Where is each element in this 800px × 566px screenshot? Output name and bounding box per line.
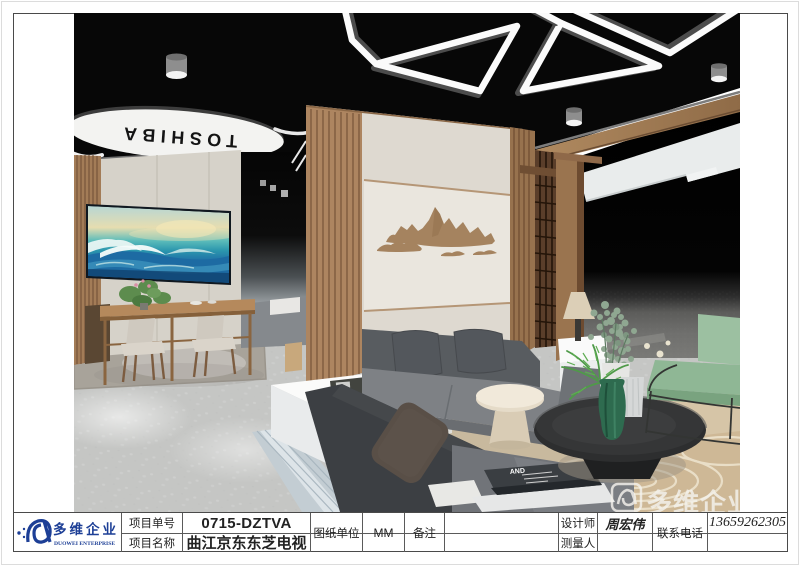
svg-text:多维企业: 多维企业 — [53, 521, 119, 537]
svg-text:AND: AND — [510, 468, 526, 476]
svg-text:DUOWEI ENTERPRISE: DUOWEI ENTERPRISE — [54, 541, 115, 547]
